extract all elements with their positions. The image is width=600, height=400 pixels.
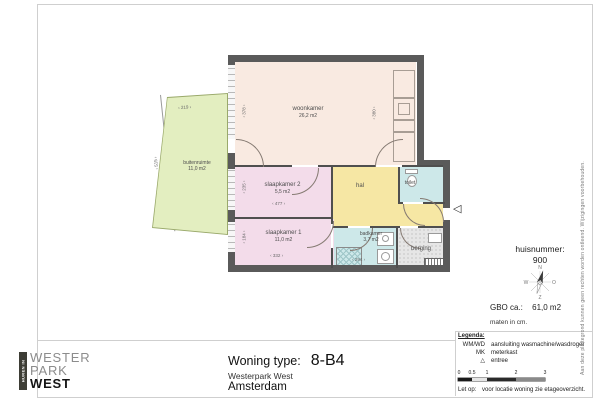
entree-arrow-icon: ◁ xyxy=(453,204,461,215)
wall-segment xyxy=(228,55,424,62)
legend: Legenda: WM/WD aansluiting wasmachine/wa… xyxy=(458,333,588,365)
room-label-berging: berging xyxy=(398,246,444,253)
wall-segment xyxy=(228,55,235,65)
wall-segment xyxy=(417,55,424,167)
wall-segment xyxy=(443,160,450,208)
project-city: Amsterdam xyxy=(228,381,287,393)
logo: WESTER PARK WEST xyxy=(30,351,90,390)
wall-segment xyxy=(234,217,333,219)
shower xyxy=(336,247,362,266)
legend-item: MK meterkast xyxy=(458,349,588,357)
kitchen-counter xyxy=(393,120,415,132)
storage-unit xyxy=(428,233,442,243)
compass-e: O xyxy=(552,280,556,286)
dimension-label: 219 xyxy=(178,105,191,110)
woning-type: Woning type:8-B4 xyxy=(228,352,345,370)
kitchen-sink xyxy=(398,103,410,115)
huisnummer-block: huisnummer: 900 xyxy=(495,244,585,267)
room-label-toilet: toilet xyxy=(399,180,421,186)
compass-icon: N O Z W xyxy=(523,265,557,299)
divider xyxy=(37,340,455,341)
dimension-label: 378 xyxy=(242,104,247,117)
wall-segment xyxy=(228,265,450,272)
compass-w: W xyxy=(524,280,529,286)
toilet-cistern xyxy=(405,169,418,174)
divider xyxy=(455,331,592,332)
huisnummer-value: 900 xyxy=(533,255,547,265)
huisnummer-label: huisnummer: xyxy=(515,244,564,254)
room-label-woonkamer: woonkamer 26,2 m2 xyxy=(258,106,358,119)
room-label-buitenruimte: buitenruimte 11,0 m2 xyxy=(160,160,234,172)
woning-type-value: 8-B4 xyxy=(311,352,345,369)
washing-machine-door xyxy=(381,252,390,261)
dimension-label: 332 xyxy=(270,254,283,259)
door-opening xyxy=(292,165,318,167)
compass-s: Z xyxy=(538,295,541,301)
legend-item: WM/WD aansluiting wasmachine/wasdroger xyxy=(458,341,588,349)
dimension-label: 184 xyxy=(242,230,247,243)
dimension-label: 294 xyxy=(352,258,365,263)
disclaimer-vertical: Aan deze plattegrond kunnen geen rechten… xyxy=(580,55,590,375)
gbo-label: GBO ca.: xyxy=(490,303,523,312)
divider xyxy=(455,331,456,396)
legend-title: Legenda: xyxy=(458,333,588,339)
scale-bar: 0 0.5 1 2 3 xyxy=(458,370,550,384)
room-label-badkamer: badkamer 3,7 m2 xyxy=(346,231,396,243)
entree-triangle-icon: △ xyxy=(458,357,485,365)
wall-segment xyxy=(331,167,333,268)
gbo-line: GBO ca.: 61,0 m2 xyxy=(490,303,561,312)
compass-n: N xyxy=(538,265,542,271)
wall-segment xyxy=(228,210,235,222)
dimension-label: 235 xyxy=(242,180,247,193)
room-label-slaapkamer-1: slaapkamer 1 11,0 m2 xyxy=(234,230,333,243)
attention-note: Let op: voor locatie woning zie etageove… xyxy=(458,387,585,393)
logo-tagline-bar: HUREN IN xyxy=(19,352,27,390)
gbo-value: 61,0 m2 xyxy=(532,303,561,312)
scale-bar-segments xyxy=(458,378,545,381)
project-name: Westerpark West xyxy=(228,371,293,381)
units-note: maten in cm. xyxy=(490,319,527,326)
legend-item: △ entree xyxy=(458,357,588,365)
dimension-label: 477 xyxy=(272,202,285,207)
kitchen-cabinet xyxy=(393,70,415,98)
wall-segment xyxy=(234,165,443,167)
room-label-hal: hal xyxy=(340,183,380,190)
room-label-slaapkamer-2: slaapkamer 2 5,5 m2 xyxy=(234,182,331,195)
wall-segment xyxy=(228,252,235,267)
dimension-label: 380 xyxy=(372,106,377,119)
